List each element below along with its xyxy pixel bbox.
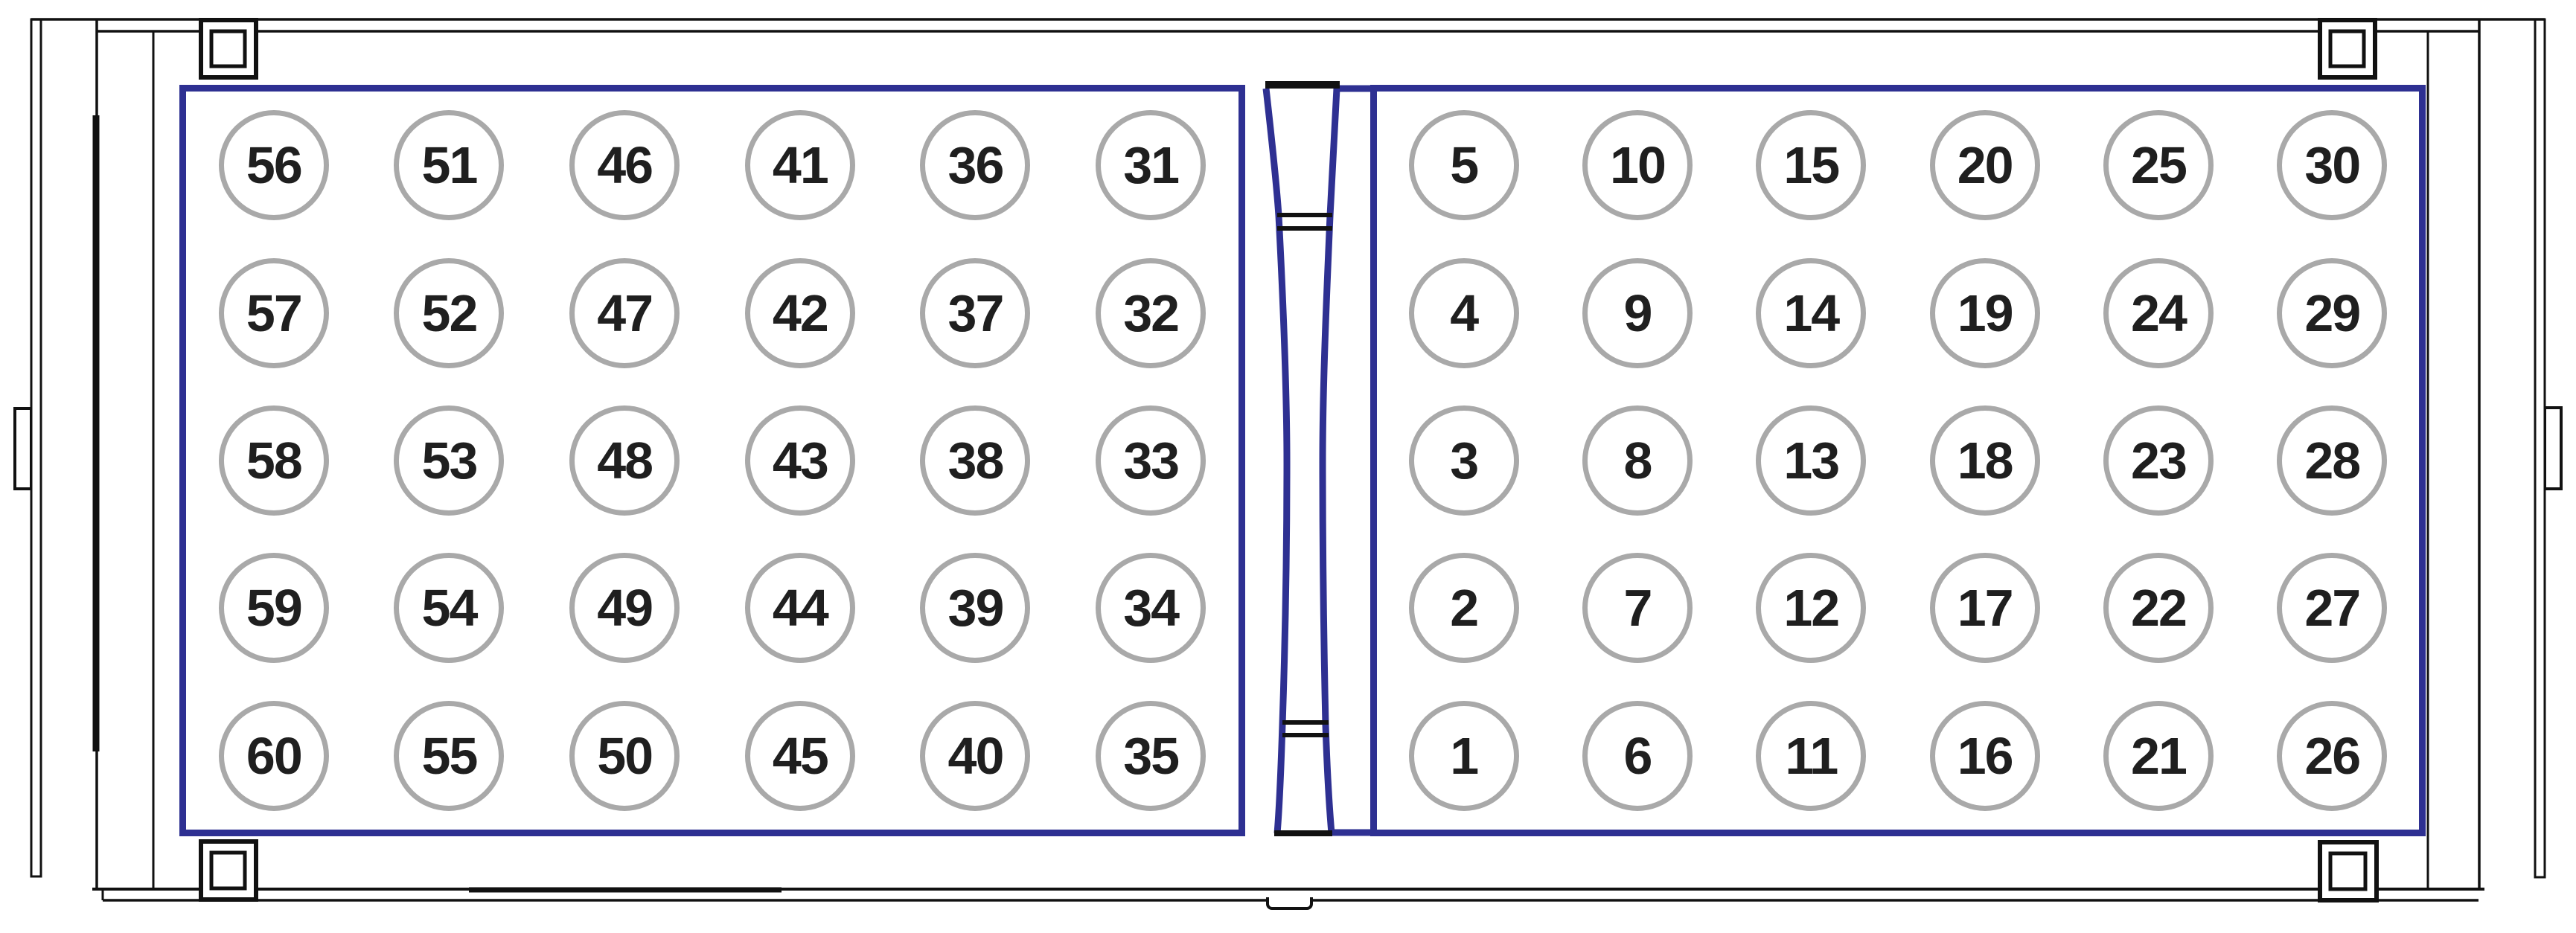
fuse-circle-26: 26 — [2277, 701, 2387, 811]
right-side-tab — [2545, 408, 2561, 489]
mounting-bracket-bottom-left — [201, 841, 256, 900]
bracket-outer-square — [201, 20, 256, 77]
fuse-circle-15: 15 — [1756, 110, 1866, 220]
fuse-circle-36: 36 — [920, 110, 1030, 220]
fuse-circle-24: 24 — [2103, 258, 2214, 368]
fuse-circle-17: 17 — [1930, 553, 2040, 663]
fuse-circle-44: 44 — [745, 553, 855, 663]
fuse-circle-51: 51 — [394, 110, 504, 220]
bracket-outer-square — [2320, 20, 2375, 77]
fuse-circle-16: 16 — [1930, 701, 2040, 811]
fuse-panel-left: 5651464136315752474237325853484338335954… — [179, 85, 1245, 836]
fuse-circle-23: 23 — [2103, 405, 2214, 516]
bracket-inner-square — [2330, 853, 2365, 889]
fuse-circle-57: 57 — [219, 258, 329, 368]
left-side-tab — [15, 408, 31, 489]
fuse-circle-39: 39 — [920, 553, 1030, 663]
mounting-bracket-top-right — [2320, 20, 2375, 77]
fuse-puller-right-edge — [1323, 89, 1337, 833]
fuse-circle-25: 25 — [2103, 110, 2214, 220]
fuse-circle-55: 55 — [394, 701, 504, 811]
fuse-circle-9: 9 — [1582, 258, 1693, 368]
fuse-circle-32: 32 — [1096, 258, 1206, 368]
fuse-circle-43: 43 — [745, 405, 855, 516]
fuse-circle-35: 35 — [1096, 701, 1206, 811]
fuse-circle-38: 38 — [920, 405, 1030, 516]
fuse-panel-right: 5101520253049141924293813182328271217222… — [1370, 85, 2426, 836]
fuse-circle-54: 54 — [394, 553, 504, 663]
fuse-circle-52: 52 — [394, 258, 504, 368]
fuse-circle-45: 45 — [745, 701, 855, 811]
fuse-circle-56: 56 — [219, 110, 329, 220]
fuse-circle-30: 30 — [2277, 110, 2387, 220]
fuse-circle-58: 58 — [219, 405, 329, 516]
fuse-circle-2: 2 — [1409, 553, 1519, 663]
fuse-puller-left-edge — [1266, 89, 1287, 833]
bracket-inner-square — [211, 31, 245, 66]
fuse-circle-50: 50 — [569, 701, 680, 811]
fuse-circle-12: 12 — [1756, 553, 1866, 663]
fuse-circle-8: 8 — [1582, 405, 1693, 516]
fuse-circle-40: 40 — [920, 701, 1030, 811]
fuse-puller — [1265, 85, 1374, 833]
fuse-circle-22: 22 — [2103, 553, 2214, 663]
fuse-circle-3: 3 — [1409, 405, 1519, 516]
fuse-circle-53: 53 — [394, 405, 504, 516]
fuse-box-diagram: 5651464136315752474237325853484338335954… — [0, 0, 2576, 933]
fuse-circle-48: 48 — [569, 405, 680, 516]
fuse-circle-27: 27 — [2277, 553, 2387, 663]
fuse-grid-left: 5651464136315752474237325853484338335954… — [186, 92, 1239, 830]
fuse-circle-41: 41 — [745, 110, 855, 220]
bracket-outer-square — [2320, 842, 2377, 900]
fuse-circle-19: 19 — [1930, 258, 2040, 368]
fuse-grid-right: 5101520253049141924293813182328271217222… — [1377, 92, 2419, 830]
fuse-circle-59: 59 — [219, 553, 329, 663]
fuse-circle-33: 33 — [1096, 405, 1206, 516]
fuse-circle-29: 29 — [2277, 258, 2387, 368]
fuse-circle-28: 28 — [2277, 405, 2387, 516]
fuse-circle-20: 20 — [1930, 110, 2040, 220]
fuse-circle-18: 18 — [1930, 405, 2040, 516]
fuse-circle-42: 42 — [745, 258, 855, 368]
bracket-inner-square — [211, 853, 245, 888]
fuse-circle-49: 49 — [569, 553, 680, 663]
fuse-circle-37: 37 — [920, 258, 1030, 368]
bracket-outer-square — [201, 841, 256, 900]
fuse-circle-21: 21 — [2103, 701, 2214, 811]
fuse-circle-1: 1 — [1409, 701, 1519, 811]
fuse-circle-31: 31 — [1096, 110, 1206, 220]
left-end-flange — [31, 19, 41, 876]
bracket-inner-square — [2330, 31, 2364, 66]
fuse-circle-7: 7 — [1582, 553, 1693, 663]
bottom-center-tab — [1268, 897, 1311, 908]
fuse-circle-13: 13 — [1756, 405, 1866, 516]
fuse-circle-46: 46 — [569, 110, 680, 220]
fuse-circle-60: 60 — [219, 701, 329, 811]
mounting-bracket-bottom-right — [2320, 842, 2377, 900]
fuse-circle-47: 47 — [569, 258, 680, 368]
fuse-circle-34: 34 — [1096, 553, 1206, 663]
fuse-circle-4: 4 — [1409, 258, 1519, 368]
fuse-circle-14: 14 — [1756, 258, 1866, 368]
fuse-circle-6: 6 — [1582, 701, 1693, 811]
fuse-circle-11: 11 — [1756, 701, 1866, 811]
mounting-bracket-top-left — [201, 20, 256, 77]
fuse-circle-10: 10 — [1582, 110, 1693, 220]
right-end-flange — [2535, 19, 2545, 877]
fuse-circle-5: 5 — [1409, 110, 1519, 220]
